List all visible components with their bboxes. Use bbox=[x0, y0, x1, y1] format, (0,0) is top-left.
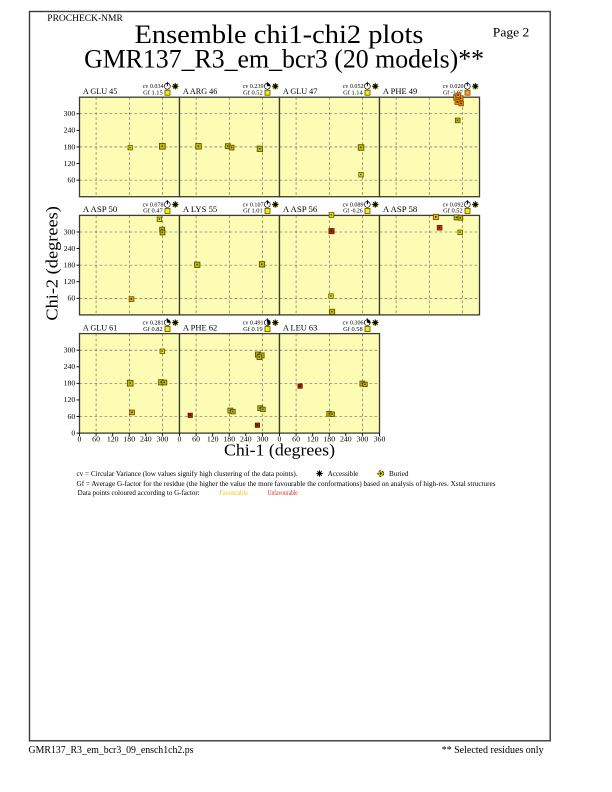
svg-text:120: 120 bbox=[307, 435, 319, 444]
svg-text:Chi-2 (degrees): Chi-2 (degrees) bbox=[43, 206, 62, 321]
svg-text:GMR137_R3_em_bcr3 (20 models)*: GMR137_R3_em_bcr3 (20 models)** bbox=[84, 44, 484, 73]
svg-text:Gf -0.26: Gf -0.26 bbox=[343, 208, 363, 215]
svg-text:60: 60 bbox=[68, 294, 76, 303]
svg-text:Gf 0.52: Gf 0.52 bbox=[243, 90, 263, 97]
svg-text:cv 0.306: cv 0.306 bbox=[343, 321, 364, 327]
svg-text:Gf 1.15: Gf 1.15 bbox=[143, 90, 163, 97]
svg-text:A ASP 58: A ASP 58 bbox=[383, 204, 417, 214]
svg-text:0: 0 bbox=[178, 435, 182, 444]
svg-text:300: 300 bbox=[64, 227, 76, 236]
svg-text:Gf 0.58: Gf 0.58 bbox=[343, 326, 363, 333]
svg-text:60: 60 bbox=[192, 435, 200, 444]
svg-text:A LEU 63: A LEU 63 bbox=[283, 322, 317, 332]
svg-text:300: 300 bbox=[357, 435, 369, 444]
svg-text:GMR137_R3_em_bcr3_09_ensch1ch2: GMR137_R3_em_bcr3_09_ensch1ch2.ps bbox=[29, 745, 194, 756]
svg-text:A ASP 50: A ASP 50 bbox=[83, 204, 117, 214]
svg-text:300: 300 bbox=[64, 109, 76, 118]
svg-text:240: 240 bbox=[240, 435, 252, 444]
svg-text:Gf 0.19: Gf 0.19 bbox=[243, 326, 263, 333]
svg-text:cv 0.239: cv 0.239 bbox=[243, 84, 264, 90]
svg-text:cv 0.078: cv 0.078 bbox=[143, 202, 164, 208]
svg-text:Page 2: Page 2 bbox=[493, 25, 530, 39]
svg-text:240: 240 bbox=[64, 126, 76, 135]
svg-text:120: 120 bbox=[64, 277, 76, 286]
svg-text:300: 300 bbox=[64, 345, 76, 354]
svg-text:cv 0.107: cv 0.107 bbox=[243, 202, 264, 208]
svg-text:A GLU 47: A GLU 47 bbox=[283, 86, 317, 96]
svg-text:cv 0.089: cv 0.089 bbox=[343, 202, 364, 208]
svg-text:PROCHECK-NMR: PROCHECK-NMR bbox=[47, 13, 123, 23]
svg-text:cv 0.020: cv 0.020 bbox=[443, 84, 464, 90]
svg-text:A PHE 49: A PHE 49 bbox=[383, 86, 417, 96]
svg-text:cv 0.034: cv 0.034 bbox=[143, 84, 164, 90]
svg-text:cv 0.052: cv 0.052 bbox=[343, 84, 364, 90]
svg-text:Gf 0.52: Gf 0.52 bbox=[443, 208, 463, 215]
svg-text:60: 60 bbox=[68, 412, 76, 421]
svg-text:300: 300 bbox=[157, 435, 169, 444]
svg-text:180: 180 bbox=[64, 260, 76, 269]
svg-text:180: 180 bbox=[323, 435, 335, 444]
svg-text:A GLU 45: A GLU 45 bbox=[83, 86, 117, 96]
svg-text:120: 120 bbox=[107, 435, 119, 444]
svg-text:cv 0.092: cv 0.092 bbox=[443, 202, 464, 208]
svg-text:0: 0 bbox=[278, 435, 282, 444]
svg-text:240: 240 bbox=[340, 435, 352, 444]
svg-text:Gf 1.01: Gf 1.01 bbox=[243, 208, 263, 215]
svg-text:120: 120 bbox=[207, 435, 219, 444]
svg-text:cv 0.491: cv 0.491 bbox=[243, 321, 264, 327]
svg-text:60: 60 bbox=[68, 175, 76, 184]
svg-text:A PHE 62: A PHE 62 bbox=[183, 322, 217, 332]
svg-text:240: 240 bbox=[64, 244, 76, 253]
svg-text:360: 360 bbox=[374, 435, 386, 444]
svg-text:Gf 0.82: Gf 0.82 bbox=[143, 326, 163, 333]
svg-text:120: 120 bbox=[64, 395, 76, 404]
svg-text:180: 180 bbox=[123, 435, 135, 444]
svg-text:60: 60 bbox=[292, 435, 300, 444]
svg-text:0: 0 bbox=[71, 428, 75, 437]
svg-text:Data points coloured according: Data points coloured according to G-fact… bbox=[78, 490, 200, 497]
svg-text:A GLU 61: A GLU 61 bbox=[83, 322, 117, 332]
svg-text:** Selected residues only: ** Selected residues only bbox=[442, 745, 544, 756]
svg-text:180: 180 bbox=[64, 379, 76, 388]
svg-text:Gf = Average G-factor for the: Gf = Average G-factor for the residue (t… bbox=[77, 481, 496, 488]
svg-text:60: 60 bbox=[92, 435, 100, 444]
svg-text:Accessible: Accessible bbox=[328, 471, 359, 478]
svg-text:180: 180 bbox=[64, 142, 76, 151]
svg-text:0: 0 bbox=[78, 435, 82, 444]
svg-text:120: 120 bbox=[64, 159, 76, 168]
svg-text:A ARG 46: A ARG 46 bbox=[183, 86, 217, 96]
svg-text:300: 300 bbox=[257, 435, 269, 444]
svg-text:Unfavourable: Unfavourable bbox=[268, 490, 298, 497]
svg-text:Gf 1.14: Gf 1.14 bbox=[343, 90, 363, 97]
svg-text:Favourable: Favourable bbox=[219, 490, 248, 497]
svg-text:240: 240 bbox=[140, 435, 152, 444]
svg-text:Gf 0.47: Gf 0.47 bbox=[143, 208, 163, 215]
svg-text:240: 240 bbox=[64, 362, 76, 371]
svg-text:cv 0.281: cv 0.281 bbox=[143, 321, 164, 327]
svg-text:180: 180 bbox=[223, 435, 235, 444]
svg-text:A LYS 55: A LYS 55 bbox=[183, 204, 217, 214]
svg-text:Buried: Buried bbox=[389, 471, 409, 478]
svg-text:cv = Circular Variance (low va: cv = Circular Variance (low values signi… bbox=[77, 471, 298, 478]
svg-text:A ASP 56: A ASP 56 bbox=[283, 204, 317, 214]
